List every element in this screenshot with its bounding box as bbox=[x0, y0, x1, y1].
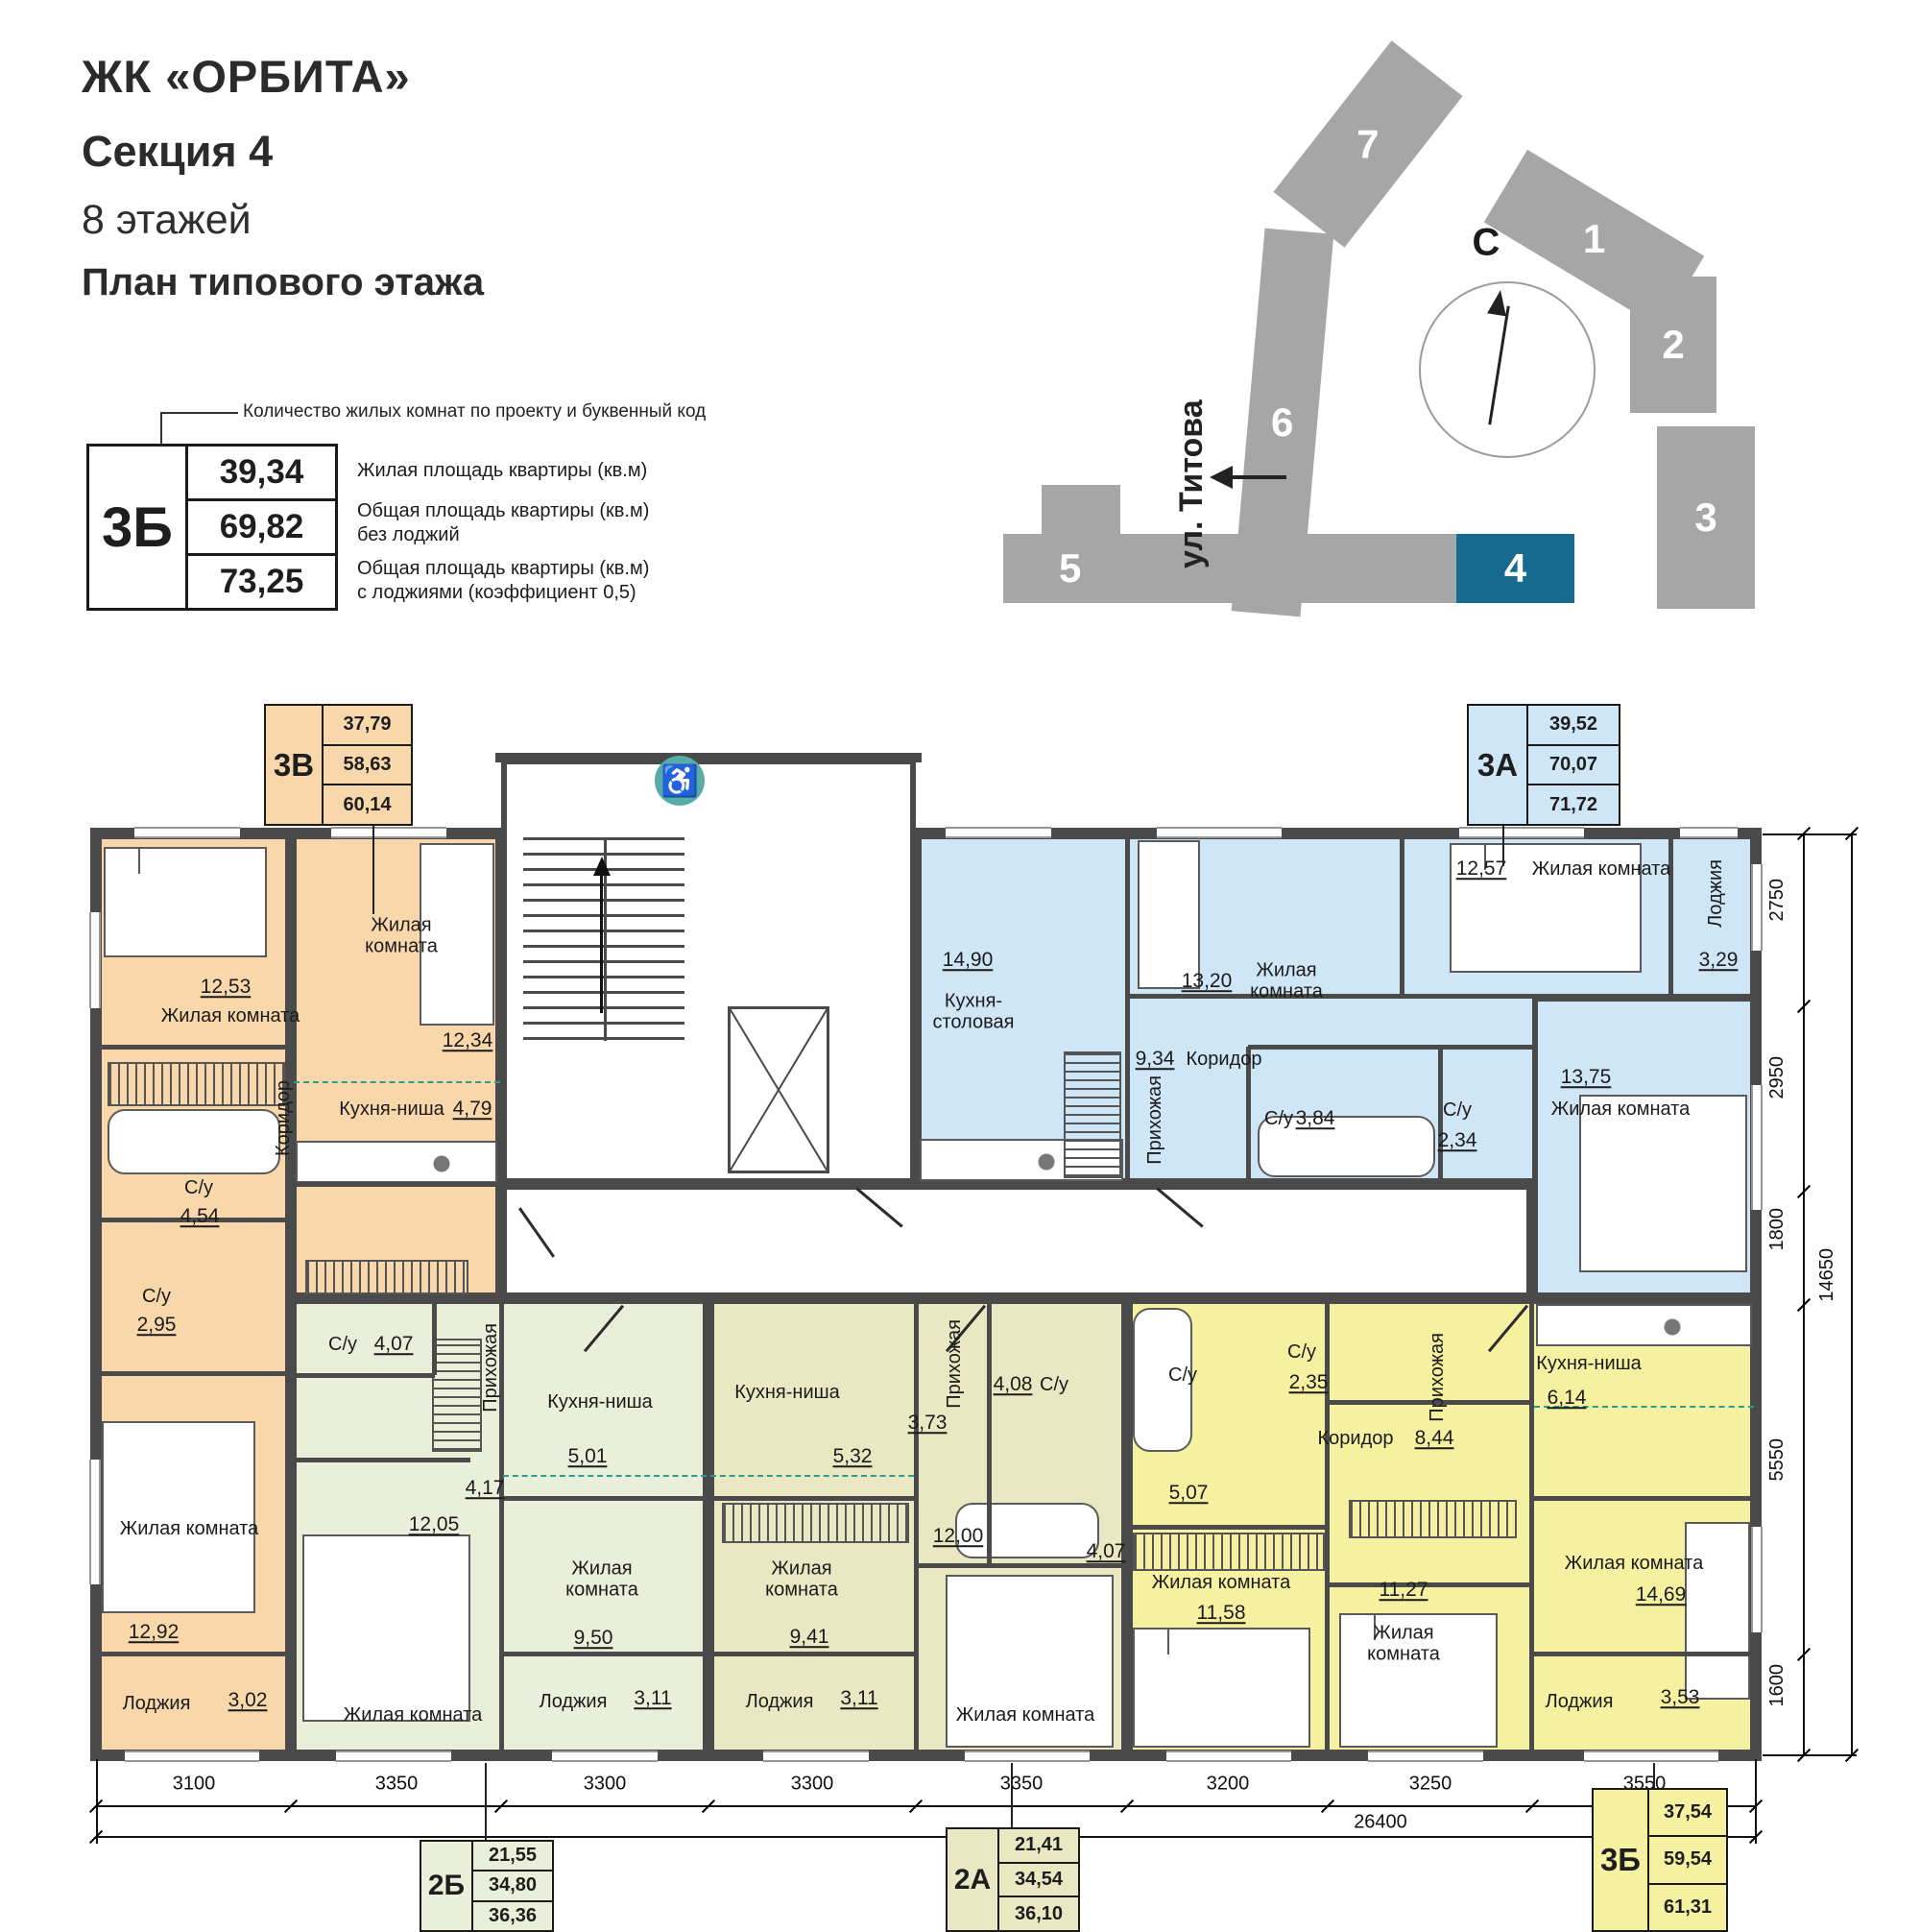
callout-value: 60,14 bbox=[324, 784, 411, 824]
callout-value: 61,31 bbox=[1649, 1883, 1726, 1930]
room-name: Кухня-ниша bbox=[547, 1391, 653, 1413]
room-area: 4,79 bbox=[453, 1098, 492, 1121]
stair-arrow-head-icon bbox=[593, 857, 611, 876]
window bbox=[1584, 1751, 1718, 1762]
room-area: 5,32 bbox=[833, 1445, 873, 1468]
kitchen-niche-boundary bbox=[710, 1475, 914, 1477]
callout-value: 37,79 bbox=[324, 706, 411, 744]
callout-3b: 3Б 37,54 59,54 61,31 bbox=[1592, 1788, 1728, 1932]
room-area: 14,69 bbox=[1636, 1583, 1687, 1606]
room-name: Лоджия bbox=[540, 1691, 608, 1712]
room-name: Коридор bbox=[1318, 1428, 1394, 1449]
wall-segment bbox=[1125, 833, 1130, 1184]
room-area: 4,17 bbox=[466, 1477, 505, 1500]
callout-code: 3Б bbox=[1594, 1790, 1649, 1930]
room-area: 14,90 bbox=[943, 949, 994, 972]
north-arrow-head-icon bbox=[1487, 289, 1510, 317]
room-area: 8,44 bbox=[1415, 1427, 1454, 1450]
wall-segment bbox=[708, 1652, 916, 1656]
room-name: Жилая комната bbox=[765, 1558, 838, 1602]
window bbox=[763, 1751, 869, 1762]
dimension-total: 26400 bbox=[1354, 1812, 1407, 1834]
extension-line bbox=[1755, 1759, 1757, 1844]
room-name: Жилая комната bbox=[161, 1005, 300, 1026]
room-name: Жилая комната bbox=[1152, 1572, 1290, 1593]
room-name: Жилая комната bbox=[1250, 960, 1323, 1003]
callout-value: 34,54 bbox=[999, 1862, 1078, 1896]
window bbox=[1368, 1751, 1483, 1762]
room-name: С/у bbox=[1168, 1364, 1197, 1386]
window bbox=[1459, 827, 1584, 838]
dimension-line bbox=[96, 1836, 1756, 1838]
callout-code: 3А bbox=[1469, 706, 1528, 824]
callout-leader-line bbox=[1011, 1763, 1013, 1827]
window bbox=[89, 1460, 101, 1584]
dimension-value: 3200 bbox=[1207, 1774, 1250, 1796]
outer-wall bbox=[495, 753, 922, 762]
room-name: С/у bbox=[142, 1286, 171, 1307]
north-label: С bbox=[1473, 222, 1500, 265]
common-corridor bbox=[501, 1184, 1532, 1298]
callout-2b: 2Б 21,55 34,80 36,36 bbox=[420, 1840, 554, 1932]
dimension-value: 3100 bbox=[173, 1774, 216, 1796]
room-area: 4,07 bbox=[374, 1333, 414, 1356]
callout-values: 21,41 34,54 36,10 bbox=[999, 1829, 1078, 1930]
window bbox=[89, 912, 101, 1008]
wall-segment bbox=[432, 1298, 437, 1375]
room-area: 3,73 bbox=[908, 1412, 948, 1435]
callout-value: 36,36 bbox=[473, 1900, 552, 1930]
wall-segment bbox=[1529, 1298, 1534, 1755]
room-area: 11,58 bbox=[1197, 1602, 1246, 1625]
callout-leader-line bbox=[372, 826, 374, 914]
wardrobe-icon bbox=[1349, 1500, 1517, 1538]
room-name: Жилая комната bbox=[1551, 1099, 1690, 1120]
room-name: Лоджия bbox=[1546, 1691, 1614, 1712]
room-name: Жилая комната bbox=[1532, 858, 1670, 880]
window bbox=[1680, 827, 1738, 838]
kitchen-niche-boundary bbox=[294, 1081, 500, 1083]
room-name: Жилая комната bbox=[1367, 1623, 1440, 1666]
callout-value: 58,63 bbox=[324, 744, 411, 785]
window bbox=[1751, 1527, 1763, 1632]
wardrobe-icon bbox=[108, 1062, 285, 1106]
extension-line bbox=[1763, 1754, 1857, 1756]
wardrobe-icon bbox=[432, 1339, 482, 1452]
dimension-value: 5550 bbox=[1766, 1438, 1788, 1482]
callout-code: 3В bbox=[266, 706, 324, 824]
wall-segment bbox=[291, 1458, 470, 1462]
room-name: Жилая комната bbox=[956, 1704, 1094, 1726]
room-area: 12,00 bbox=[933, 1525, 984, 1548]
room-area: 4,54 bbox=[180, 1205, 220, 1228]
window bbox=[134, 827, 240, 838]
accessibility-icon: ♿ bbox=[655, 756, 705, 806]
room-name: Коридор bbox=[1187, 1049, 1262, 1070]
wall-segment bbox=[1127, 1525, 1328, 1530]
window bbox=[1166, 1751, 1291, 1762]
room-area: 9,41 bbox=[790, 1626, 829, 1649]
wall-segment bbox=[1328, 1582, 1532, 1587]
room-area: 4,07 bbox=[1087, 1540, 1126, 1563]
room-name: Кухня- столовая bbox=[933, 991, 1015, 1034]
callout-value: 34,80 bbox=[473, 1870, 552, 1899]
room-name: Прихожая bbox=[944, 1319, 966, 1409]
dimension-value: 2950 bbox=[1766, 1056, 1788, 1099]
dimension-value: 3250 bbox=[1409, 1774, 1452, 1796]
wall-segment bbox=[1127, 994, 1756, 999]
room-name: Жилая комната bbox=[365, 915, 438, 958]
room-name: С/у bbox=[1264, 1108, 1293, 1129]
bed-icon bbox=[1579, 1095, 1747, 1272]
room-name: Кухня-ниша bbox=[339, 1099, 444, 1120]
callout-3a: 3А 39,52 70,07 71,72 bbox=[1467, 704, 1620, 826]
dimension-value: 3350 bbox=[375, 1774, 419, 1796]
room-name: Кухня-ниша bbox=[734, 1382, 840, 1403]
room-area: 9,50 bbox=[574, 1627, 613, 1650]
room-area: 3,84 bbox=[1296, 1107, 1335, 1130]
wall-segment bbox=[987, 1298, 992, 1563]
dimension-value: 2750 bbox=[1766, 879, 1788, 922]
window bbox=[1157, 827, 1282, 838]
callout-2a: 2А 21,41 34,54 36,10 bbox=[946, 1827, 1080, 1932]
room-area: 2,95 bbox=[137, 1314, 177, 1337]
wall-segment bbox=[914, 1298, 919, 1755]
kitchen-counter-icon bbox=[296, 1141, 497, 1183]
bed-icon bbox=[302, 1534, 470, 1722]
wall-segment bbox=[1248, 1045, 1532, 1050]
window bbox=[1751, 1085, 1763, 1210]
wall-segment bbox=[501, 1652, 708, 1656]
callout-values: 21,55 34,80 36,36 bbox=[473, 1842, 552, 1930]
dimension-total: 14650 bbox=[1816, 1248, 1838, 1302]
callout-leader-line bbox=[1502, 826, 1504, 866]
room-area: 2,34 bbox=[1438, 1129, 1477, 1152]
sofa-icon bbox=[1138, 840, 1200, 989]
room-area: 3,29 bbox=[1699, 949, 1739, 972]
dimension-value: 3300 bbox=[584, 1774, 627, 1796]
bathtub-icon bbox=[108, 1109, 280, 1174]
callout-value: 37,54 bbox=[1649, 1790, 1726, 1835]
window bbox=[552, 1751, 658, 1762]
dimension-value: 1800 bbox=[1766, 1208, 1788, 1251]
room-name: Кухня-ниша bbox=[1536, 1353, 1642, 1374]
callout-3v: 3В 37,79 58,63 60,14 bbox=[264, 704, 413, 826]
room-area: 3,11 bbox=[840, 1687, 877, 1710]
room-area: 3,02 bbox=[228, 1689, 268, 1712]
dimension-value: 1600 bbox=[1766, 1664, 1788, 1707]
window bbox=[1751, 864, 1763, 951]
room-name: Коридор bbox=[273, 1080, 295, 1156]
bed-icon bbox=[1133, 1628, 1310, 1748]
wardrobe-icon bbox=[1064, 1051, 1121, 1178]
dimension-value: 3300 bbox=[791, 1774, 834, 1796]
wall-segment bbox=[1532, 1652, 1756, 1656]
kitchen-niche-boundary bbox=[503, 1475, 707, 1477]
window bbox=[965, 1751, 1090, 1762]
room-area: 12,05 bbox=[409, 1513, 460, 1536]
room-name: Прихожая bbox=[1427, 1333, 1449, 1422]
room-name: С/у bbox=[184, 1177, 213, 1198]
wardrobe-icon bbox=[722, 1503, 909, 1543]
room-area: 11,27 bbox=[1380, 1579, 1428, 1602]
callout-values: 37,54 59,54 61,31 bbox=[1649, 1790, 1726, 1930]
room-name: С/у bbox=[1040, 1374, 1068, 1395]
room-area: 5,01 bbox=[568, 1445, 608, 1468]
room-area: 3,53 bbox=[1661, 1686, 1700, 1709]
wardrobe-icon bbox=[1133, 1533, 1325, 1571]
room-name: Лоджия bbox=[123, 1693, 191, 1714]
room-area: 12,53 bbox=[201, 976, 252, 999]
callout-values: 37,79 58,63 60,14 bbox=[324, 706, 411, 824]
callout-value: 39,52 bbox=[1528, 706, 1619, 744]
callout-value: 36,10 bbox=[999, 1896, 1078, 1930]
room-area: 13,75 bbox=[1561, 1066, 1612, 1089]
kitchen-counter-icon bbox=[1536, 1304, 1752, 1346]
street-arrow-head-icon bbox=[1210, 466, 1233, 489]
room-area: 13,20 bbox=[1182, 970, 1233, 993]
wall-segment bbox=[291, 1373, 435, 1378]
room-area: 12,92 bbox=[129, 1621, 180, 1644]
room-name: С/у bbox=[1443, 1099, 1472, 1121]
room-name: Прихожая bbox=[480, 1323, 502, 1413]
wall-segment bbox=[501, 1496, 708, 1501]
wall-segment bbox=[1400, 833, 1404, 996]
callout-value: 21,55 bbox=[473, 1842, 552, 1870]
window bbox=[331, 827, 446, 838]
callout-value: 70,07 bbox=[1528, 744, 1619, 785]
callout-code: 2Б bbox=[421, 1842, 473, 1930]
wall-segment bbox=[1532, 1496, 1756, 1501]
room-area: 12,34 bbox=[443, 1029, 493, 1052]
dimension-line bbox=[96, 1805, 1756, 1807]
callout-leader-line bbox=[485, 1763, 487, 1840]
wall-segment bbox=[96, 1652, 291, 1656]
callout-code: 2А bbox=[948, 1829, 999, 1930]
bed-icon bbox=[104, 847, 267, 957]
room-area: 6,14 bbox=[1548, 1387, 1587, 1410]
wall-segment bbox=[708, 1496, 916, 1501]
callout-value: 71,72 bbox=[1528, 784, 1619, 824]
dimension-value: 3350 bbox=[1000, 1774, 1044, 1796]
room-name: С/у bbox=[328, 1334, 357, 1355]
room-area: 9,34 bbox=[1136, 1048, 1175, 1071]
callout-value: 59,54 bbox=[1649, 1835, 1726, 1882]
room-area: 4,08 bbox=[994, 1373, 1033, 1396]
callout-values: 39,52 70,07 71,72 bbox=[1528, 706, 1619, 824]
room-name: Жилая комната bbox=[120, 1518, 258, 1539]
room-name: Прихожая bbox=[1144, 1075, 1166, 1165]
room-name: Жилая комната bbox=[565, 1558, 638, 1602]
room-name: С/у bbox=[1287, 1341, 1316, 1363]
elevator-icon bbox=[728, 1006, 829, 1173]
wall-segment bbox=[96, 1371, 291, 1376]
wall-segment bbox=[916, 1563, 1127, 1568]
extension-line bbox=[1763, 833, 1857, 835]
window bbox=[336, 1751, 451, 1762]
room-name: Лоджия bbox=[1705, 859, 1727, 928]
wall-segment bbox=[96, 1045, 291, 1050]
room-area: 2,35 bbox=[1289, 1371, 1329, 1394]
window bbox=[125, 1751, 259, 1762]
room-area: 5,07 bbox=[1169, 1482, 1209, 1505]
apartment-3v-left-wing bbox=[96, 833, 291, 1755]
dimension-line bbox=[1851, 833, 1853, 1755]
wardrobe-icon bbox=[305, 1260, 468, 1294]
room-name: Жилая комната bbox=[1565, 1553, 1703, 1574]
street-label: ул. Титова bbox=[1173, 376, 1211, 568]
callout-value: 21,41 bbox=[999, 1829, 1078, 1862]
room-name: Лоджия bbox=[746, 1691, 814, 1712]
wall-segment bbox=[291, 1182, 501, 1187]
dimension-line bbox=[1803, 833, 1805, 1755]
room-name: Жилая комната bbox=[344, 1704, 482, 1726]
window bbox=[946, 827, 1051, 838]
callout-leader-line bbox=[1653, 1763, 1655, 1788]
sofa-icon bbox=[1685, 1522, 1750, 1700]
stair-direction-arrow-icon bbox=[600, 869, 603, 1013]
room-area: 3,11 bbox=[634, 1687, 671, 1710]
floor-plan-sheet: ЖК «ОРБИТА» Секция 4 8 этажей План типов… bbox=[0, 0, 1920, 1932]
room-area: 12,57 bbox=[1456, 857, 1507, 881]
